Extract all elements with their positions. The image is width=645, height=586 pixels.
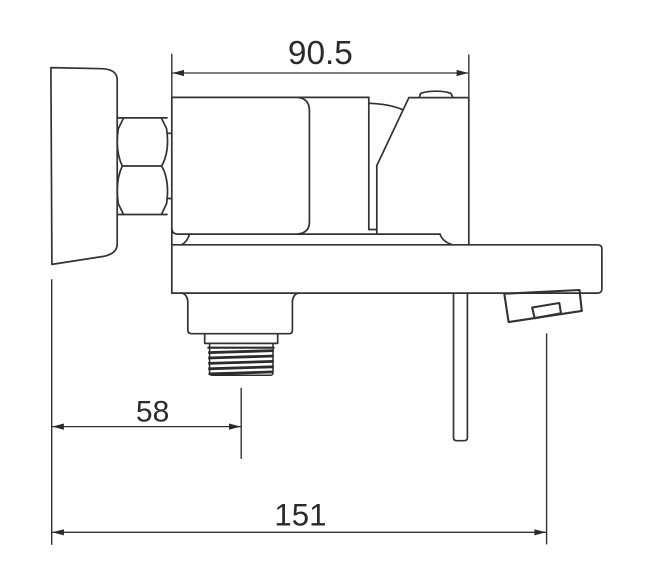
svg-text:58: 58 — [136, 395, 169, 428]
svg-text:151: 151 — [274, 497, 326, 532]
svg-text:90.5: 90.5 — [288, 35, 353, 72]
